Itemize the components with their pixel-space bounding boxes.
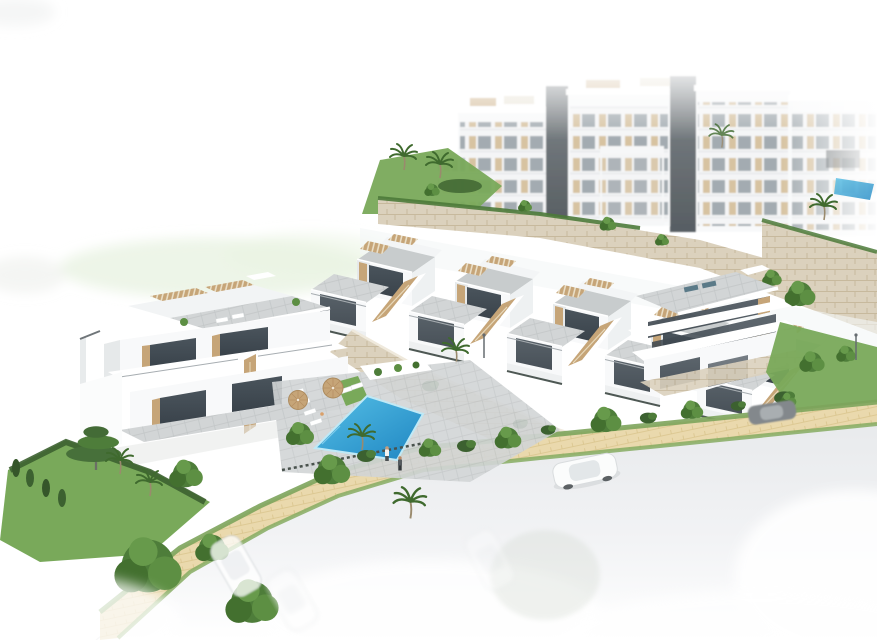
parasol-icon (289, 391, 308, 410)
roof-plant (180, 318, 188, 326)
roof-plant (292, 298, 300, 306)
pedestrian (385, 446, 389, 461)
render-canvas (0, 0, 877, 640)
sunbather (320, 412, 324, 416)
right-fade (770, 58, 877, 238)
parasol-icon (323, 378, 343, 398)
architectural-render: Aerial 3D architectural rendering of a h… (0, 0, 877, 640)
pedestrian (398, 456, 402, 470)
